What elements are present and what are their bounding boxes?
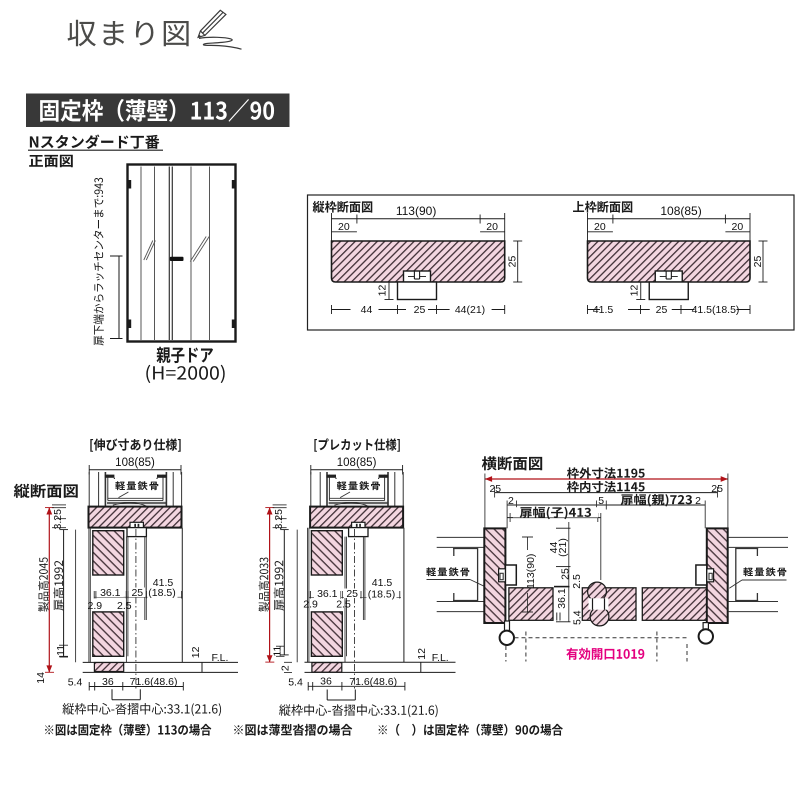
svg-text:108(85): 108(85) [115,457,155,469]
svg-text:2.9: 2.9 [303,599,318,611]
svg-text:44: 44 [361,304,373,316]
svg-text:25: 25 [711,483,723,495]
svg-text:5.4: 5.4 [572,610,584,625]
svg-text:20: 20 [486,221,498,233]
svg-text:2: 2 [695,495,701,507]
svg-text:71.6(48.6): 71.6(48.6) [349,676,397,688]
svg-text:25: 25 [752,256,764,268]
svg-text:12: 12 [628,285,640,297]
svg-text:12: 12 [190,646,202,658]
svg-text:20: 20 [338,221,350,233]
svg-text:41.5(18.5): 41.5(18.5) [692,304,740,316]
svg-text:5.4: 5.4 [68,676,83,688]
svg-text:12: 12 [377,285,389,297]
svg-text:2: 2 [279,665,291,671]
svg-text:41.5: 41.5 [593,304,614,316]
svg-text:36: 36 [102,676,114,688]
svg-text:113(90): 113(90) [525,554,537,589]
svg-text:2: 2 [508,495,514,507]
svg-text:41.5: 41.5 [372,577,393,589]
svg-text:25: 25 [131,587,143,599]
svg-text:25: 25 [560,568,572,580]
svg-text:3.25: 3.25 [52,509,64,530]
svg-text:36.1: 36.1 [100,587,121,599]
svg-text:36.1: 36.1 [317,588,338,600]
svg-text:14: 14 [35,672,47,684]
svg-text:20: 20 [732,221,744,233]
svg-text:71.6(48.6): 71.6(48.6) [130,676,178,688]
svg-text:5.4: 5.4 [288,677,303,689]
svg-text:113(90): 113(90) [396,204,436,218]
svg-text:44(21): 44(21) [455,304,485,316]
svg-text:12: 12 [416,648,428,660]
svg-text:5: 5 [598,495,604,507]
svg-text:2.5: 2.5 [336,599,351,611]
svg-text:11: 11 [55,645,67,656]
svg-text:25: 25 [414,304,426,316]
svg-text:2.5: 2.5 [571,574,583,589]
svg-text:20: 20 [594,221,606,233]
svg-text:25: 25 [656,304,668,316]
svg-text:2.9: 2.9 [87,600,102,612]
svg-text:25: 25 [489,483,501,495]
svg-text:108(85): 108(85) [337,457,377,469]
svg-text:3.25: 3.25 [273,509,285,530]
svg-text:11: 11 [272,646,284,657]
svg-text:25: 25 [507,256,519,268]
svg-text:36.1: 36.1 [556,588,568,609]
svg-text:F.L.: F.L. [432,652,449,664]
svg-text:(18.5): (18.5) [148,587,175,599]
svg-text:108(85): 108(85) [660,204,701,218]
svg-text:(21): (21) [557,538,569,557]
svg-text:(18.5): (18.5) [368,588,395,600]
svg-text:F.L.: F.L. [212,652,229,664]
svg-text:2.5: 2.5 [117,600,132,612]
svg-text:36: 36 [320,676,332,688]
